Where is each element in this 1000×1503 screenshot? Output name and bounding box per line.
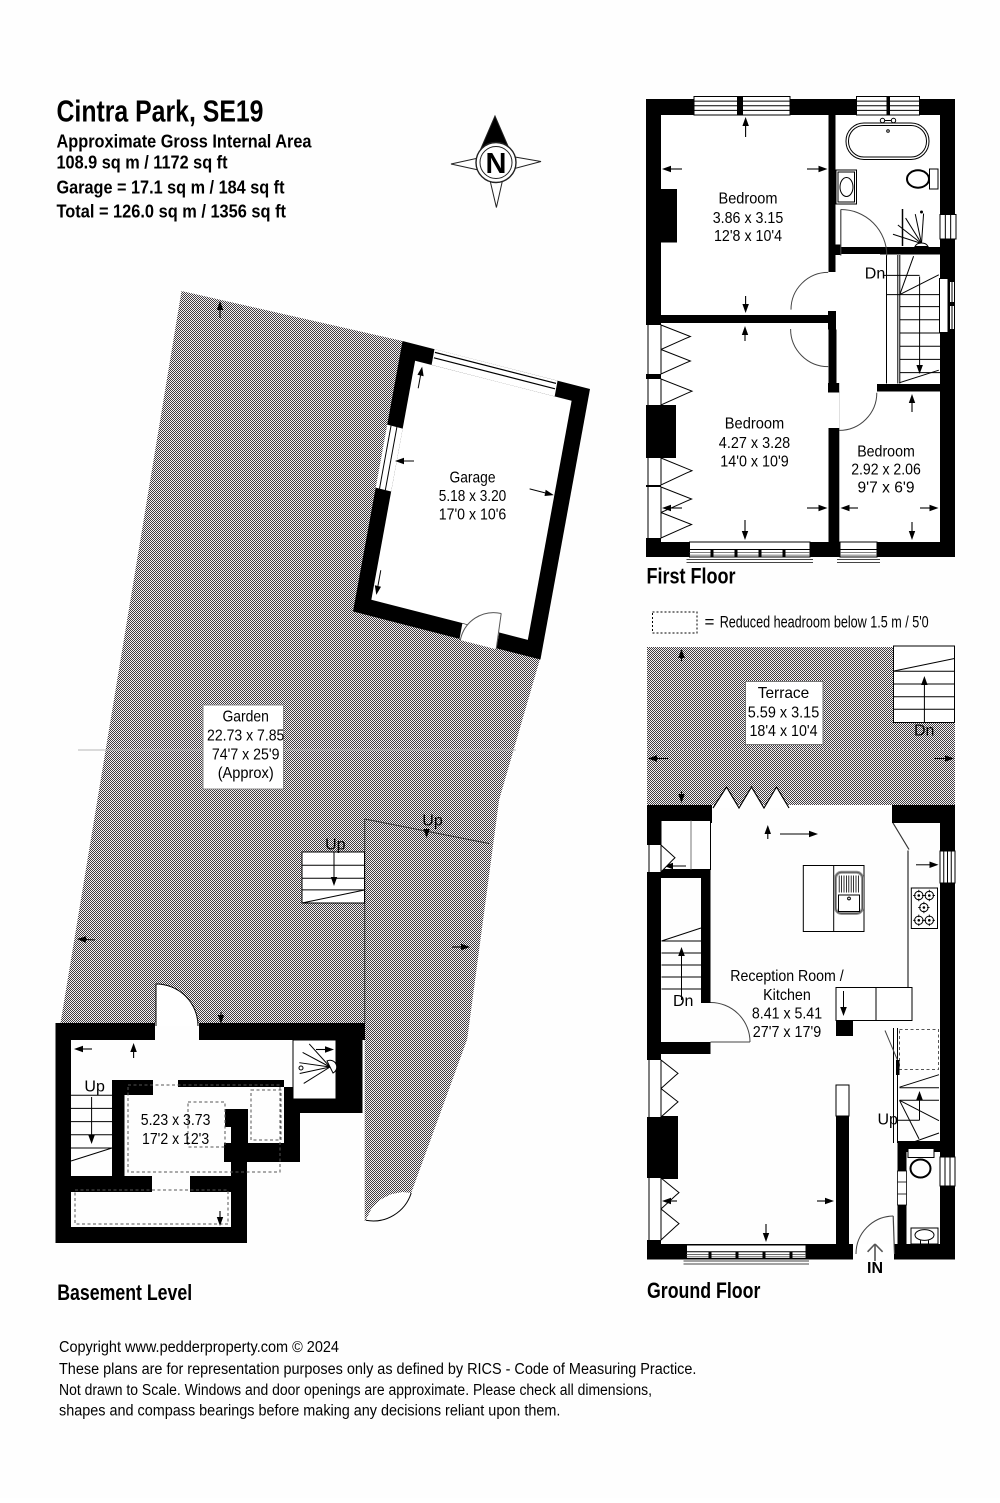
svg-text:Up: Up bbox=[325, 836, 346, 853]
svg-text:Copyright www.pedderproperty.c: Copyright www.pedderproperty.com © 2024 bbox=[59, 1339, 339, 1356]
svg-text:Kitchen: Kitchen bbox=[763, 987, 811, 1004]
svg-text:Cintra Park, SE19: Cintra Park, SE19 bbox=[57, 94, 264, 129]
svg-text:2.92 x 2.06: 2.92 x 2.06 bbox=[851, 462, 921, 479]
svg-text:5.18 x 3.20: 5.18 x 3.20 bbox=[439, 488, 507, 505]
svg-text:18'4 x 10'4: 18'4 x 10'4 bbox=[750, 723, 818, 740]
svg-text:74'7 x 25'9: 74'7 x 25'9 bbox=[212, 746, 280, 763]
svg-text:Bedroom: Bedroom bbox=[857, 444, 915, 461]
svg-text:Dn: Dn bbox=[673, 993, 693, 1010]
svg-text:Garden: Garden bbox=[222, 709, 269, 726]
svg-text:First Floor: First Floor bbox=[647, 564, 736, 589]
svg-text:Terrace: Terrace bbox=[758, 685, 810, 702]
svg-text:8.41 x 5.41: 8.41 x 5.41 bbox=[752, 1006, 822, 1023]
svg-text:9'7 x 6'9: 9'7 x 6'9 bbox=[858, 480, 915, 497]
svg-text:Garage = 17.1 sq m / 184 sq ft: Garage = 17.1 sq m / 184 sq ft bbox=[57, 178, 285, 198]
svg-text:(Approx): (Approx) bbox=[218, 765, 274, 782]
svg-text:12'8 x 10'4: 12'8 x 10'4 bbox=[714, 228, 782, 245]
svg-text:5.23 x 3.73: 5.23 x 3.73 bbox=[141, 1112, 211, 1129]
svg-text:5.59 x 3.15: 5.59 x 3.15 bbox=[748, 705, 820, 722]
svg-text:Up: Up bbox=[878, 1112, 899, 1129]
svg-text:Not drawn to Scale. Windows an: Not drawn to Scale. Windows and door ope… bbox=[59, 1382, 652, 1399]
svg-text:Dn: Dn bbox=[865, 265, 885, 282]
svg-text:These plans are for representa: These plans are for representation purpo… bbox=[59, 1361, 696, 1378]
svg-text:shapes and compass bearings be: shapes and compass bearings before makin… bbox=[59, 1403, 560, 1420]
svg-text:IN: IN bbox=[867, 1260, 883, 1277]
svg-text:Bedroom: Bedroom bbox=[725, 416, 784, 433]
svg-text:Up: Up bbox=[422, 813, 443, 830]
svg-text:Approximate Gross Internal Are: Approximate Gross Internal Area bbox=[57, 132, 313, 152]
svg-text:4.27 x 3.28: 4.27 x 3.28 bbox=[719, 435, 790, 452]
svg-text:22.73 x 7.85: 22.73 x 7.85 bbox=[207, 728, 284, 745]
svg-text:Bedroom: Bedroom bbox=[719, 191, 778, 208]
svg-text:17'0 x 10'6: 17'0 x 10'6 bbox=[439, 507, 507, 524]
svg-text:N: N bbox=[486, 148, 507, 180]
svg-text:14'0 x 10'9: 14'0 x 10'9 bbox=[720, 453, 788, 470]
svg-text:Dn: Dn bbox=[914, 723, 934, 740]
svg-text:17'2 x 12'3: 17'2 x 12'3 bbox=[142, 1131, 209, 1148]
svg-text:Basement Level: Basement Level bbox=[57, 1280, 192, 1305]
svg-text:Up: Up bbox=[84, 1079, 105, 1096]
svg-text:Reception Room /: Reception Room / bbox=[730, 968, 844, 985]
svg-text:Ground Floor: Ground Floor bbox=[647, 1278, 761, 1303]
svg-text:Reduced headroom below 1.5 m /: Reduced headroom below 1.5 m / 5'0 bbox=[720, 614, 929, 632]
svg-text:Total = 126.0 sq m / 1356 sq f: Total = 126.0 sq m / 1356 sq ft bbox=[57, 202, 287, 222]
svg-text:27'7 x 17'9: 27'7 x 17'9 bbox=[753, 1024, 821, 1041]
svg-text:108.9 sq m / 1172 sq ft: 108.9 sq m / 1172 sq ft bbox=[57, 153, 228, 173]
svg-text:3.86 x 3.15: 3.86 x 3.15 bbox=[713, 210, 784, 227]
svg-text:=: = bbox=[705, 613, 715, 632]
svg-text:Garage: Garage bbox=[450, 470, 496, 487]
